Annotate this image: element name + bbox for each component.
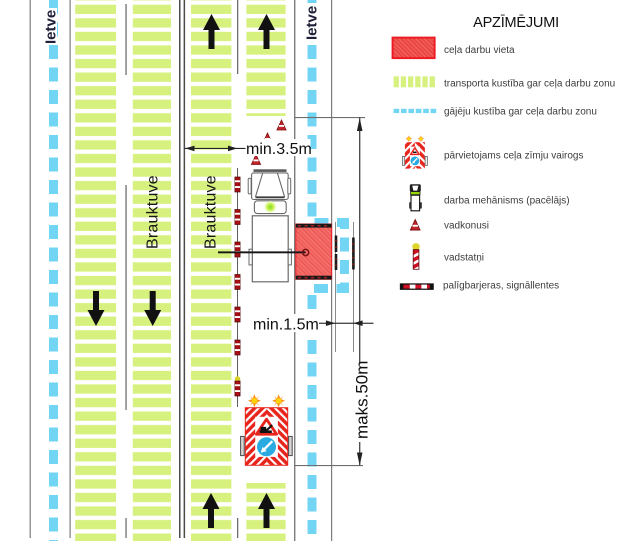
svg-text:maks.50m: maks.50m <box>353 361 372 439</box>
svg-text:ceļa darbu vieta: ceļa darbu vieta <box>444 45 515 56</box>
svg-text:vadstatņi: vadstatņi <box>444 253 484 264</box>
svg-text:transporta kustība gar ceļa da: transporta kustība gar ceļa darbu zonu <box>444 79 615 90</box>
svg-text:vadkonusi: vadkonusi <box>444 221 489 232</box>
svg-text:gājēju kustība gar ceļa darbu: gājēju kustība gar ceļa darbu zonu <box>444 107 597 118</box>
svg-text:min.1.5m: min.1.5m <box>253 317 319 334</box>
svg-text:pārvietojams ceļa zīmju vairog: pārvietojams ceļa zīmju vairogs <box>444 151 584 162</box>
svg-text:darba mehānisms (pacēlājs): darba mehānisms (pacēlājs) <box>444 196 570 207</box>
svg-text:Brauktuve: Brauktuve <box>145 175 162 249</box>
svg-text:min.3.5m: min.3.5m <box>246 141 312 158</box>
svg-text:Ietve: Ietve <box>43 10 60 44</box>
svg-text:Brauktuve: Brauktuve <box>203 175 220 249</box>
svg-text:APZĪMĒJUMI: APZĪMĒJUMI <box>473 15 559 31</box>
svg-text:palīgbarjeras, signāllentes: palīgbarjeras, signāllentes <box>443 281 559 292</box>
svg-text:Ietve: Ietve <box>304 6 321 40</box>
